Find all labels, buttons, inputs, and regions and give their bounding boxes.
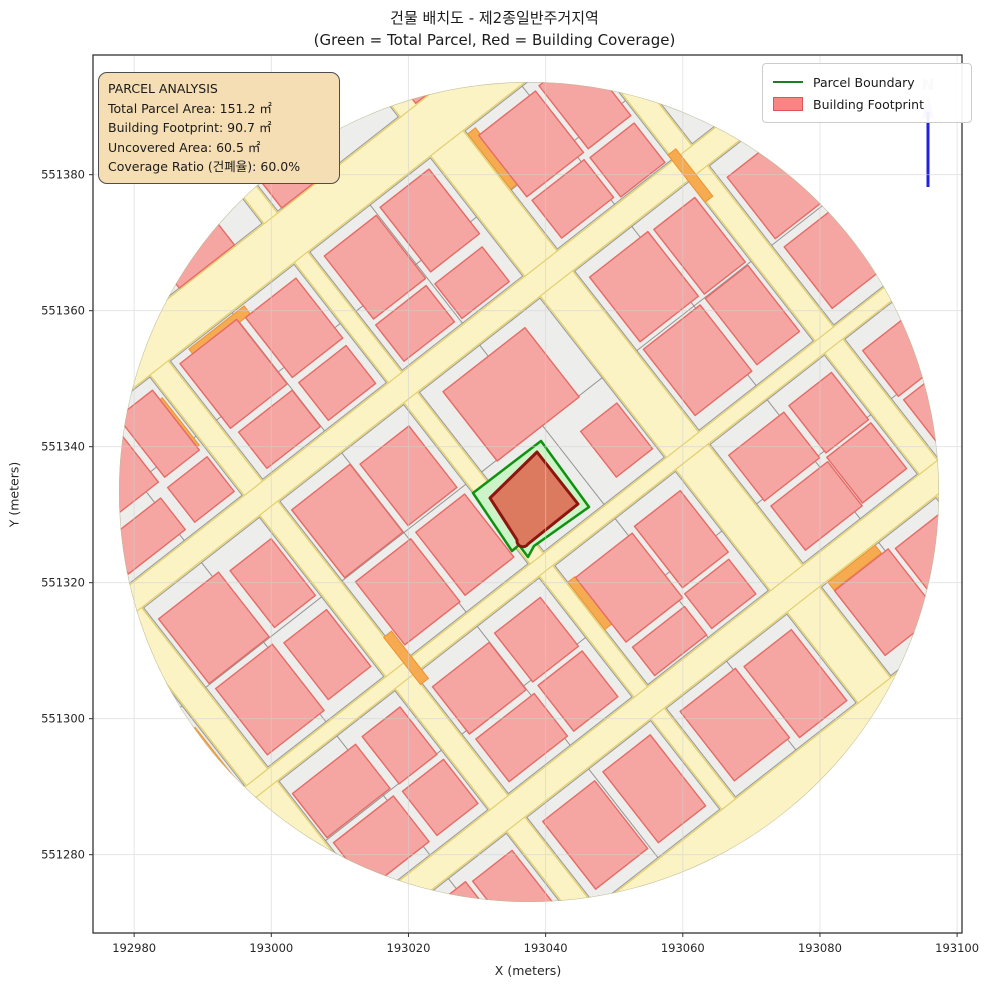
- x-tick-label: 193040: [524, 941, 568, 955]
- parcel-division-line: [915, 285, 989, 404]
- legend-row-parcel-boundary: Parcel Boundary: [773, 71, 961, 93]
- parcel-analysis-box: PARCEL ANALYSIS Total Parcel Area: 151.2…: [98, 72, 340, 184]
- chart-title: 건물 배치도 - 제2종일반주거지역 (Green = Total Parcel…: [0, 7, 989, 51]
- parcel-analysis-title: PARCEL ANALYSIS: [108, 79, 330, 99]
- building-footprint-area: Building Footprint: 90.7 ㎡: [108, 118, 330, 138]
- y-tick-label: 551280: [41, 848, 85, 862]
- x-tick-label: 193020: [387, 941, 431, 955]
- parcel-block: [0, 223, 118, 427]
- building-footprint-patch-swatch: [773, 97, 803, 111]
- parcel-boundary-line-swatch: [773, 81, 803, 83]
- parcel-division-line: [210, 835, 303, 954]
- y-tick-label: 551320: [41, 576, 85, 590]
- x-tick-label: 193100: [935, 941, 979, 955]
- y-tick-label: 551380: [41, 168, 85, 182]
- parcel-division-line: [830, 793, 890, 870]
- parcel-division-line: [0, 279, 74, 370]
- building-footprint: [969, 449, 989, 546]
- total-parcel-area: Total Parcel Area: 151.2 ㎡: [108, 99, 330, 119]
- parcel-division-line: [92, 706, 183, 777]
- y-tick-label: 551340: [41, 440, 85, 454]
- parcel-block: [956, 373, 989, 571]
- x-tick-label: 193080: [798, 941, 842, 955]
- x-tick-label: 193060: [661, 941, 705, 955]
- legend-label-building-footprint: Building Footprint: [813, 97, 924, 112]
- figure: N192980193000193020193040193060193080193…: [0, 0, 989, 990]
- parcel-division-line: [211, 859, 302, 930]
- uncovered-area: Uncovered Area: 60.5 ㎡: [108, 138, 330, 158]
- x-tick-label: 193000: [249, 941, 293, 955]
- coverage-ratio: Coverage Ratio (건폐율): 60.0%: [108, 157, 330, 177]
- y-axis-label: Y (meters): [7, 445, 22, 545]
- y-tick-label: 551360: [41, 304, 85, 318]
- parcel-division-line: [0, 268, 60, 381]
- legend: Parcel Boundary Building Footprint: [762, 63, 972, 123]
- legend-row-building-footprint: Building Footprint: [773, 93, 961, 115]
- chart-title-line1: 건물 배치도 - 제2종일반주거지역: [0, 7, 989, 29]
- parcel-division-line: [982, 674, 989, 751]
- chart-title-line2: (Green = Total Parcel, Red = Building Co…: [0, 29, 989, 51]
- x-tick-label: 192980: [112, 941, 156, 955]
- parcel-division-line: [322, 978, 391, 990]
- x-axis-label: X (meters): [0, 963, 989, 978]
- legend-label-parcel-boundary: Parcel Boundary: [813, 75, 915, 90]
- y-tick-label: 551300: [41, 712, 85, 726]
